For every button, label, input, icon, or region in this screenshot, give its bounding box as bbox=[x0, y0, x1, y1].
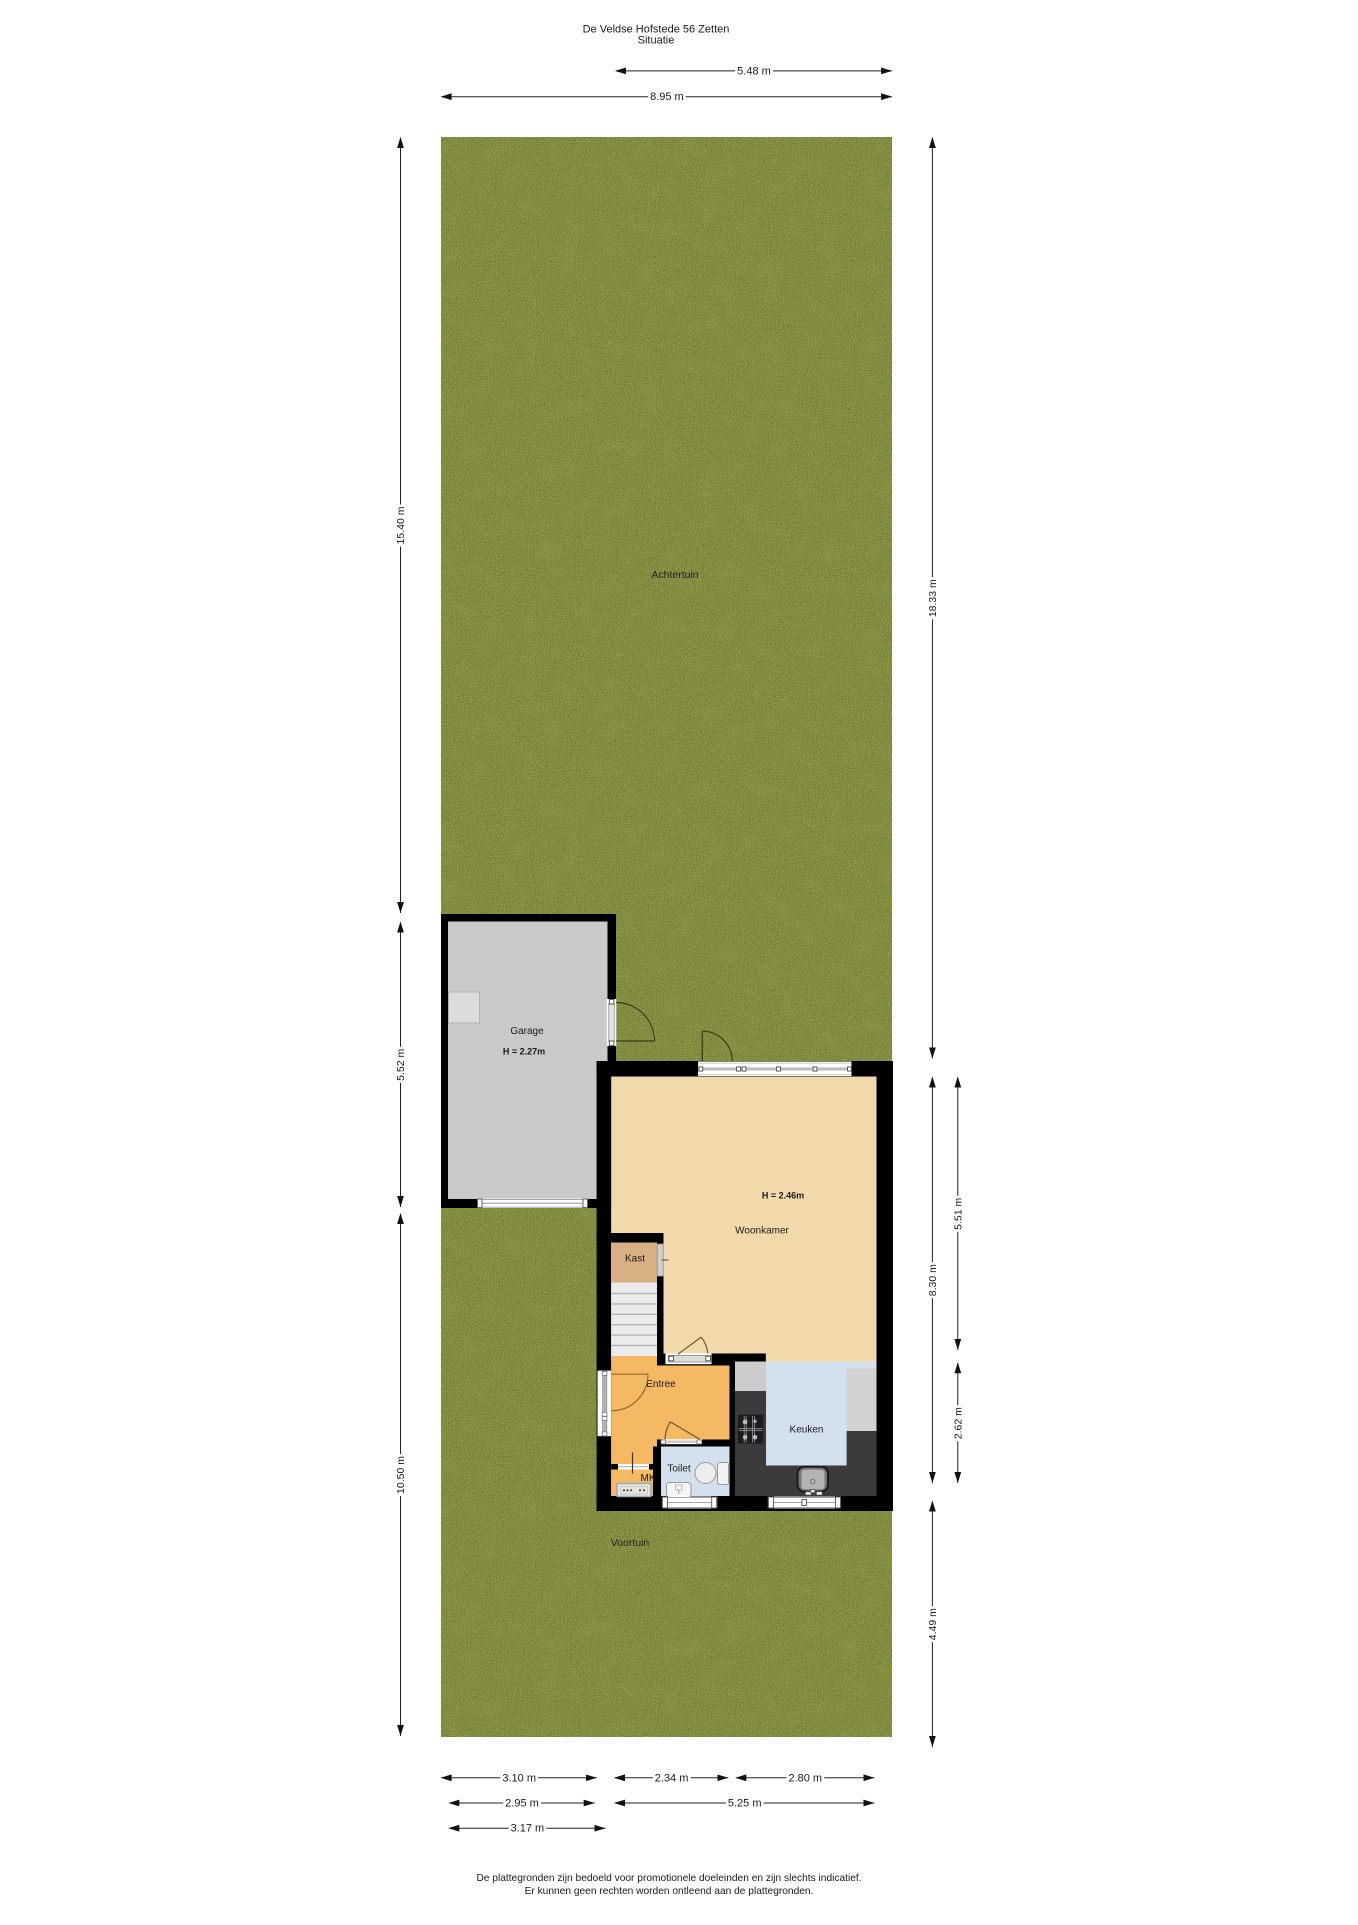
svg-text:15.40 m: 15.40 m bbox=[395, 506, 407, 544]
svg-text:8.95 m: 8.95 m bbox=[650, 91, 684, 103]
svg-text:4.49 m: 4.49 m bbox=[927, 1608, 939, 1640]
svg-text:2.95 m: 2.95 m bbox=[505, 1798, 539, 1810]
svg-text:3.10 m: 3.10 m bbox=[502, 1772, 536, 1784]
svg-text:Keuken: Keuken bbox=[790, 1425, 824, 1436]
svg-text:5.52 m: 5.52 m bbox=[395, 1049, 407, 1081]
svg-text:3.17 m: 3.17 m bbox=[511, 1823, 545, 1835]
svg-text:2.34 m: 2.34 m bbox=[655, 1772, 689, 1784]
svg-text:Kast: Kast bbox=[625, 1254, 645, 1265]
svg-text:MK: MK bbox=[641, 1473, 656, 1484]
svg-text:Voortuin: Voortuin bbox=[611, 1537, 650, 1549]
svg-text:Garage: Garage bbox=[510, 1026, 544, 1037]
svg-text:5.51 m: 5.51 m bbox=[952, 1198, 964, 1230]
svg-text:Situatie: Situatie bbox=[638, 35, 675, 47]
svg-text:5.48 m: 5.48 m bbox=[737, 65, 771, 77]
svg-text:Woonkamer: Woonkamer bbox=[735, 1226, 789, 1237]
svg-text:18.33 m: 18.33 m bbox=[927, 579, 939, 617]
svg-text:H = 2.27m: H = 2.27m bbox=[503, 1047, 545, 1057]
svg-text:De plattegronden zijn bedoeld: De plattegronden zijn bedoeld voor promo… bbox=[476, 1873, 861, 1884]
svg-text:Er kunnen geen rechten worden: Er kunnen geen rechten worden ontleend a… bbox=[525, 1886, 814, 1897]
svg-text:Entree: Entree bbox=[646, 1379, 676, 1390]
svg-text:Toilet: Toilet bbox=[667, 1464, 691, 1475]
svg-text:8.30 m: 8.30 m bbox=[927, 1264, 939, 1296]
svg-text:H = 2.46m: H = 2.46m bbox=[762, 1191, 804, 1201]
svg-text:10.50 m: 10.50 m bbox=[395, 1456, 407, 1494]
svg-text:Achtertuin: Achtertuin bbox=[651, 569, 698, 581]
svg-text:5.25 m: 5.25 m bbox=[728, 1798, 762, 1810]
svg-text:2.80 m: 2.80 m bbox=[788, 1772, 822, 1784]
svg-text:2.62 m: 2.62 m bbox=[952, 1407, 964, 1439]
